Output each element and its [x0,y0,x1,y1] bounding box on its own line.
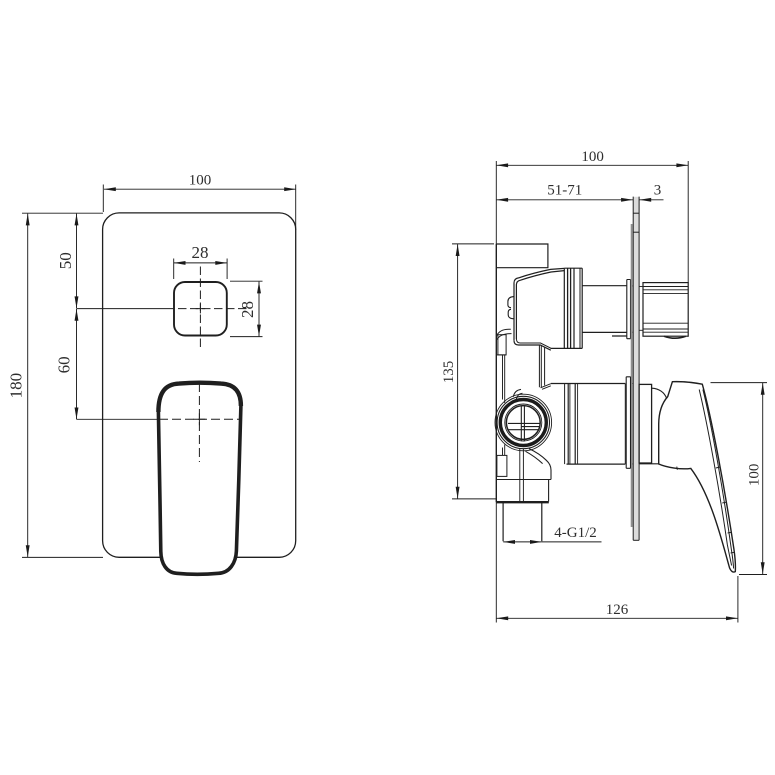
svg-text:50: 50 [56,252,75,269]
svg-text:4-G1/2: 4-G1/2 [554,525,597,541]
svg-text:100: 100 [581,149,604,165]
svg-text:3: 3 [654,183,662,199]
svg-text:135: 135 [441,361,457,384]
svg-text:180: 180 [7,373,26,399]
svg-text:100: 100 [746,464,762,487]
svg-text:51-71: 51-71 [547,183,582,199]
svg-text:28: 28 [192,243,209,262]
svg-text:100: 100 [189,173,212,189]
svg-text:28: 28 [238,301,257,318]
svg-text:126: 126 [606,602,629,618]
svg-text:60: 60 [55,356,74,373]
